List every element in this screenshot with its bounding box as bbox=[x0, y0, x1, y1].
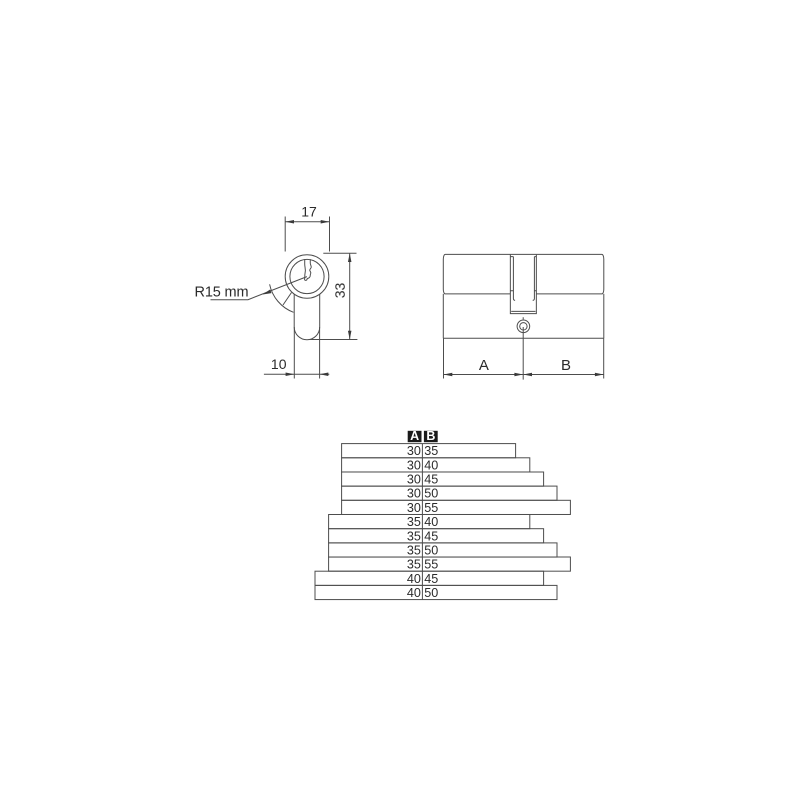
svg-text:50: 50 bbox=[424, 487, 438, 501]
svg-text:B: B bbox=[561, 357, 571, 374]
svg-text:40: 40 bbox=[407, 572, 421, 586]
svg-text:33: 33 bbox=[332, 283, 348, 299]
svg-text:30: 30 bbox=[407, 487, 421, 501]
svg-text:50: 50 bbox=[424, 544, 438, 558]
svg-text:35: 35 bbox=[407, 515, 421, 529]
svg-text:B: B bbox=[426, 429, 435, 443]
svg-text:45: 45 bbox=[424, 572, 438, 586]
svg-text:35: 35 bbox=[424, 444, 438, 458]
svg-text:R15 mm: R15 mm bbox=[195, 285, 249, 301]
svg-text:40: 40 bbox=[424, 515, 438, 529]
svg-text:40: 40 bbox=[424, 458, 438, 472]
svg-text:30: 30 bbox=[407, 501, 421, 515]
svg-text:A: A bbox=[479, 357, 489, 374]
svg-text:17: 17 bbox=[301, 203, 317, 219]
svg-text:30: 30 bbox=[407, 458, 421, 472]
svg-text:45: 45 bbox=[424, 529, 438, 543]
svg-text:50: 50 bbox=[424, 586, 438, 600]
svg-text:A: A bbox=[410, 429, 419, 443]
svg-text:35: 35 bbox=[407, 529, 421, 543]
svg-text:40: 40 bbox=[407, 586, 421, 600]
svg-text:10: 10 bbox=[271, 356, 287, 372]
svg-text:35: 35 bbox=[407, 544, 421, 558]
svg-text:55: 55 bbox=[424, 501, 438, 515]
svg-text:35: 35 bbox=[407, 558, 421, 572]
svg-text:45: 45 bbox=[424, 473, 438, 487]
svg-text:30: 30 bbox=[407, 473, 421, 487]
svg-text:55: 55 bbox=[424, 558, 438, 572]
svg-text:30: 30 bbox=[407, 444, 421, 458]
